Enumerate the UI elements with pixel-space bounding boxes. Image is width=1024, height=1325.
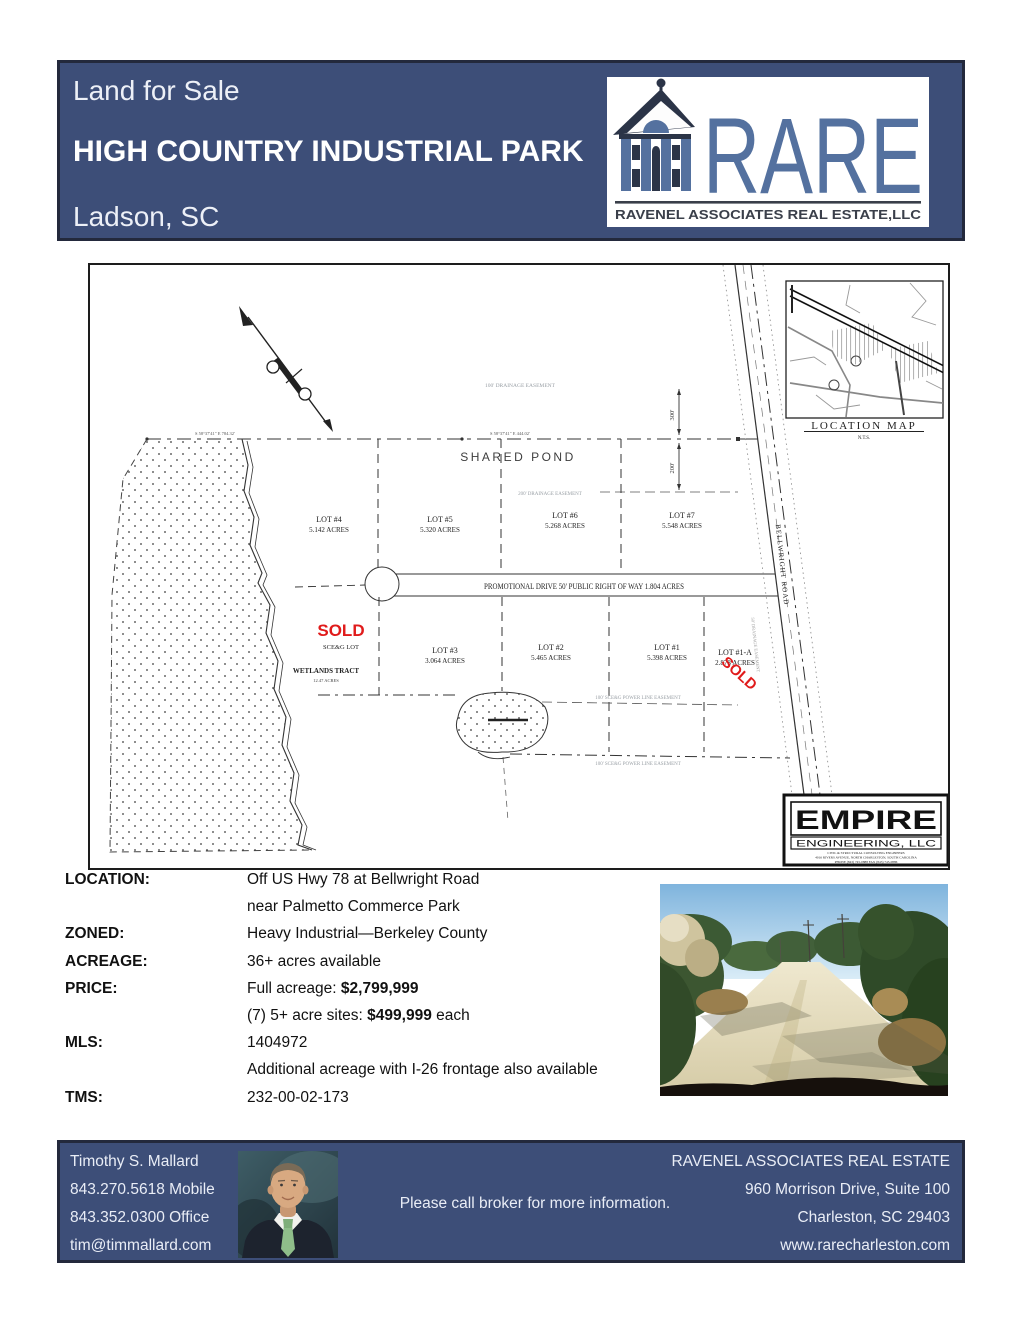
- dimension-label: 300': [669, 410, 676, 421]
- detail-row: TMS: 232-00-02-173: [65, 1089, 650, 1116]
- wetlands-label: WETLANDS TRACT: [293, 667, 360, 675]
- lot-acres: 5.142 ACRES: [309, 526, 349, 534]
- detail-value: near Palmetto Commerce Park: [247, 898, 460, 915]
- lot-acres: 5.320 ACRES: [420, 526, 460, 534]
- building-icon: [613, 79, 695, 192]
- plat-survey-drawing: WETLANDS TRACT 12.47 ACRES S 58°37'41" E: [90, 265, 948, 868]
- empire-logo: EMPIRE ENGINEERING, LLC CIVIL & STRUCTUR…: [784, 795, 948, 865]
- detail-value: Additional acreage with I-26 frontage al…: [247, 1061, 598, 1078]
- sold-label: SOLD: [317, 621, 364, 640]
- office-address2: Charleston, SC 29403: [671, 1204, 950, 1232]
- detail-row: (7) 5+ acre sites: $499,999 each: [65, 1007, 650, 1034]
- location-map-inset: LOCATION MAP N.T.S.: [786, 281, 946, 441]
- lot-name: LOT #6: [552, 511, 577, 520]
- plat-map: WETLANDS TRACT 12.47 ACRES S 58°37'41" E: [88, 263, 950, 870]
- lot-acres: 5.548 ACRES: [662, 522, 702, 530]
- detail-label: MLS:: [65, 1034, 103, 1052]
- road-photo-graphic: [660, 884, 948, 1096]
- empire-line3: PHONE (843) 745-0888 FAX (843) 745-0886: [835, 860, 898, 864]
- agent-office-phone: 843.352.0300 Office: [70, 1204, 215, 1232]
- detail-row: PRICE: Full acreage: $2,799,999: [65, 980, 650, 1007]
- detail-row: Additional acreage with I-26 frontage al…: [65, 1061, 650, 1088]
- city-label: Ladson, SC: [73, 201, 219, 233]
- site-road-photo: [660, 884, 948, 1096]
- detail-row: MLS: 1404972: [65, 1034, 650, 1061]
- wetlands-area: WETLANDS TRACT 12.47 ACRES: [110, 439, 359, 852]
- page-title: HIGH COUNTRY INDUSTRIAL PARK: [73, 135, 584, 169]
- detail-label: ZONED:: [65, 925, 124, 943]
- location-map-scale: N.T.S.: [858, 436, 870, 441]
- detail-row: near Palmetto Commerce Park: [65, 898, 650, 925]
- detail-value: Heavy Industrial—Berkeley County: [247, 925, 487, 942]
- agent-email: tim@timmallard.com: [70, 1232, 215, 1260]
- empire-division: ENGINEERING, LLC: [796, 839, 937, 849]
- detail-value: Full acreage:: [247, 980, 341, 997]
- detail-value: (7) 5+ acre sites:: [247, 1007, 367, 1024]
- detail-value: 1404972: [247, 1034, 307, 1051]
- detail-row: ZONED: Heavy Industrial—Berkeley County: [65, 925, 650, 952]
- lot-name: LOT #7: [669, 511, 694, 520]
- lot-name: LOT #2: [538, 643, 563, 652]
- empire-name: EMPIRE: [795, 805, 937, 835]
- lot-name: LOT #1-A: [718, 648, 752, 657]
- agent-contact-block: Timothy S. Mallard 843.270.5618 Mobile 8…: [70, 1148, 215, 1260]
- agent-name: Timothy S. Mallard: [70, 1148, 215, 1176]
- detail-row: ACREAGE: 36+ acres available: [65, 953, 650, 980]
- detail-value: Off US Hwy 78 at Bellwright Road: [247, 871, 479, 888]
- easement-label: 100' SCE&G POWER LINE EASEMENT: [595, 762, 681, 767]
- boundary-lines: S 58°37'41" E 784.32' S 58°37'41" E 444.…: [145, 431, 758, 441]
- office-address-block: RAVENEL ASSOCIATES REAL ESTATE 960 Morri…: [671, 1148, 950, 1260]
- easement-label: 100' SCE&G POWER LINE EASEMENT: [595, 696, 681, 701]
- easement-label: 100' DRAINAGE EASEMENT: [485, 383, 556, 389]
- agent-headshot: [238, 1151, 338, 1258]
- footer-banner: Timothy S. Mallard 843.270.5618 Mobile 8…: [57, 1140, 965, 1263]
- detail-value: 36+ acres available: [247, 953, 381, 970]
- empire-line1: CIVIL & STRUCTURAL CONSULTING ENGINEERS: [827, 851, 904, 855]
- shared-pond-label: SHARED POND: [460, 450, 576, 464]
- north-arrow-icon: [239, 306, 333, 432]
- promotional-drive-label: PROMOTIONAL DRIVE 50' PUBLIC RIGHT OF WA…: [484, 582, 684, 591]
- flyer-page: Land for Sale HIGH COUNTRY INDUSTRIAL PA…: [0, 0, 1024, 1325]
- small-pond: [456, 692, 547, 758]
- detail-label: LOCATION:: [65, 871, 150, 889]
- logo-acronym: RARE: [703, 95, 923, 216]
- office-website: www.rarecharleston.com: [671, 1232, 950, 1260]
- detail-value: 232-00-02-173: [247, 1089, 349, 1106]
- logo-company-name: RAVENEL ASSOCIATES REAL ESTATE,LLC: [615, 207, 922, 222]
- lower-boundaries: 100' SCE&G POWER LINE EASEMENT 100' SCE&…: [318, 695, 790, 821]
- detail-label: ACREAGE:: [65, 953, 148, 971]
- location-map-title: LOCATION MAP: [811, 420, 917, 432]
- agent-mobile: 843.270.5618 Mobile: [70, 1176, 215, 1204]
- lot-name: LOT #1: [654, 643, 679, 652]
- broker-note: Please call broker for more information.: [370, 1195, 700, 1213]
- office-address1: 960 Morrison Drive, Suite 100: [671, 1176, 950, 1204]
- header-banner: Land for Sale HIGH COUNTRY INDUSTRIAL PA…: [57, 60, 965, 241]
- lot-acres: 3.064 ACRES: [425, 657, 465, 665]
- lot-name: LOT #5: [427, 515, 452, 524]
- dimension-label: 200': [669, 463, 676, 474]
- detail-label: TMS:: [65, 1089, 103, 1107]
- rare-logo-graphic: RARE RAVENEL ASSOCIATES REAL ESTATE,LLC: [607, 77, 929, 227]
- office-company: RAVENEL ASSOCIATES REAL ESTATE: [671, 1148, 950, 1176]
- lot-acres: 5.398 ACRES: [647, 654, 687, 662]
- sale-label: Land for Sale: [73, 75, 240, 107]
- lot-name: LOT #3: [432, 646, 457, 655]
- agent-headshot-graphic: [238, 1151, 338, 1258]
- easement-annotations: 100' DRAINAGE EASEMENT SHARED POND 200' …: [460, 383, 738, 497]
- promotional-drive: PROMOTIONAL DRIVE 50' PUBLIC RIGHT OF WA…: [295, 567, 778, 601]
- bellwright-road-label: BELLWRIGHT ROAD: [774, 524, 790, 606]
- bearing-label: S 58°37'41" E 444.02': [490, 431, 530, 436]
- detail-row: LOCATION: Off US Hwy 78 at Bellwright Ro…: [65, 871, 650, 898]
- bearing-label: S 58°37'41" E 784.32': [195, 431, 235, 436]
- property-details: LOCATION: Off US Hwy 78 at Bellwright Ro…: [65, 871, 650, 1116]
- lot-acres: 5.465 ACRES: [531, 654, 571, 662]
- lot-name: LOT #4: [316, 515, 341, 524]
- easement-label: 200' DRAINAGE EASEMENT: [518, 492, 582, 497]
- sceg-lot-label: SCE&G LOT: [323, 644, 359, 651]
- brokerage-logo: RARE RAVENEL ASSOCIATES REAL ESTATE,LLC: [607, 77, 929, 227]
- lot-acres: 5.268 ACRES: [545, 522, 585, 530]
- wetlands-sublabel: 12.47 ACRES: [313, 678, 339, 683]
- detail-label: PRICE:: [65, 980, 118, 998]
